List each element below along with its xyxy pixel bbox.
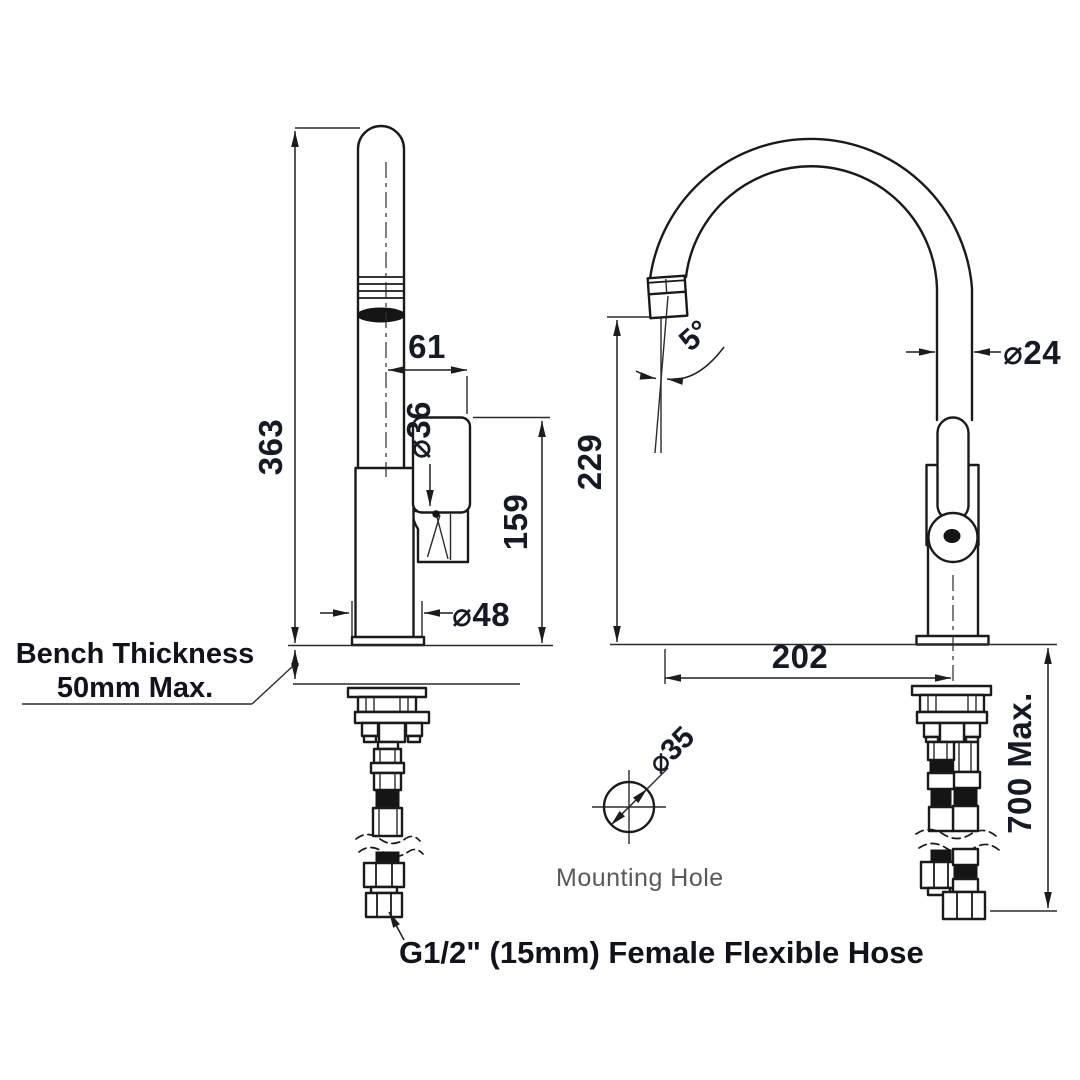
dim-spout-reach-value: 202 xyxy=(772,638,829,675)
dim-spout-offset-value: 61 xyxy=(408,328,446,365)
dim-spout-angle: 5° xyxy=(636,296,724,453)
bench-thickness-line2: 50mm Max. xyxy=(57,672,213,704)
dim-mounting-hole-value: ⌀35 xyxy=(641,720,701,780)
dim-hose-length-value: 700 Max. xyxy=(1001,692,1038,834)
valve-block-side xyxy=(413,511,469,562)
gooseneck-outer xyxy=(650,139,972,420)
pivot-dot xyxy=(944,530,960,543)
bench-thickness-note: Bench Thickness 50mm Max. xyxy=(16,638,293,704)
spout-tube-side xyxy=(358,126,404,472)
dim-base-diameter: ⌀48 xyxy=(320,596,510,636)
flexible-hoses-front xyxy=(916,742,999,919)
dim-spout-clearance: 229 xyxy=(571,317,650,642)
mounting-hole-detail: ⌀35 Mounting Hole xyxy=(556,720,724,892)
faucet-dimension-drawing: 363 61 ⌀36 159 ⌀48 Ben xyxy=(0,0,1080,1080)
dim-handle-height-value: 159 xyxy=(497,494,534,551)
mounting-hole-label: Mounting Hole xyxy=(556,864,724,892)
hose-note: G1/2" (15mm) Female Flexible Hose xyxy=(389,912,924,970)
underbench-hardware-side xyxy=(348,688,429,749)
handle-front xyxy=(938,418,969,521)
technical-drawing-page: 363 61 ⌀36 159 ⌀48 Ben xyxy=(0,0,1080,1080)
dim-spout-angle-value: 5° xyxy=(673,314,716,358)
underbench-hardware-front xyxy=(912,686,991,742)
dim-base-diameter-value: ⌀48 xyxy=(452,596,510,633)
front-view: 5° xyxy=(571,139,1061,919)
dim-body-diameter-value: ⌀36 xyxy=(400,401,437,459)
side-view: 363 61 ⌀36 159 ⌀48 Ben xyxy=(16,126,553,917)
dim-overall-height-value: 363 xyxy=(252,419,289,476)
faucet-body-side xyxy=(356,468,414,638)
gooseneck-inner xyxy=(686,166,937,420)
dim-spout-tube-diameter-value: ⌀24 xyxy=(1003,334,1061,371)
hose-note-label: G1/2" (15mm) Female Flexible Hose xyxy=(399,935,924,970)
flexible-hose-side xyxy=(356,749,423,917)
dim-spout-tube-diameter: ⌀24 xyxy=(906,334,1061,371)
dim-spout-clearance-value: 229 xyxy=(571,434,608,491)
base-flange-side xyxy=(352,637,424,645)
dim-overall-height: 363 xyxy=(252,128,360,643)
bench-thickness-line1: Bench Thickness xyxy=(16,638,255,670)
dim-hose-length: 700 Max. xyxy=(990,648,1057,911)
